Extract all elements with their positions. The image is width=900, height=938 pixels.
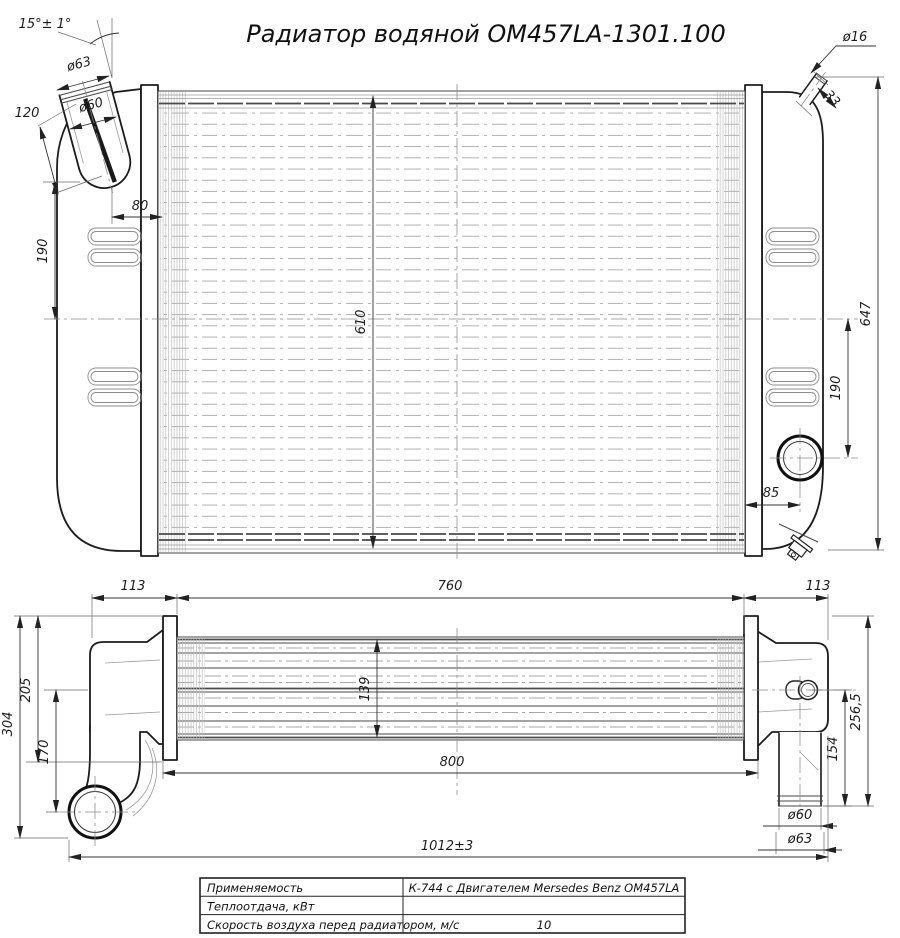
bottom-view: 113 760 113 304 205 170 139 bbox=[1, 579, 874, 862]
dim-right-height: 256,5 bbox=[826, 616, 874, 806]
dim-outlet-outer-dia: ø63 bbox=[758, 832, 842, 854]
right-side-plate bbox=[745, 85, 762, 556]
dim-label: 80 bbox=[132, 199, 149, 214]
spec-table: Применяемость К-744 с Двигателем Mersede… bbox=[200, 878, 685, 933]
radiator-core-bottom bbox=[177, 637, 744, 740]
spec-row-label: Теплоотдача, кВт bbox=[207, 900, 315, 914]
dim-label: 190 bbox=[36, 239, 51, 264]
dim-label: 256,5 bbox=[849, 693, 864, 730]
dim-label: 139 bbox=[358, 677, 373, 702]
dim-label: 33 bbox=[820, 87, 842, 109]
dim-steam-pipe-dia: ø16 bbox=[811, 30, 876, 73]
dim-label: 647 bbox=[859, 301, 874, 327]
left-side-plate bbox=[141, 85, 158, 556]
dim-core-width: 760 bbox=[177, 579, 744, 634]
technical-drawing: Радиатор водяной ОМ457LA-1301.100 bbox=[0, 0, 900, 938]
dim-label: 205 bbox=[19, 678, 34, 703]
spec-row-value: К-744 с Двигателем Mersedes Benz ОМ457LA bbox=[409, 881, 680, 895]
dim-label: 800 bbox=[440, 755, 465, 770]
dim-label: 85 bbox=[763, 486, 780, 501]
dim-label: 15°± 1° bbox=[19, 17, 72, 32]
dim-label: ø16 bbox=[842, 30, 868, 45]
spec-row-value: 10 bbox=[537, 918, 552, 932]
dim-label: 610 bbox=[354, 310, 369, 335]
spec-row-label: Скорость воздуха перед радиатором, м/с bbox=[207, 918, 460, 932]
dim-outlet-inner-dia: ø60 bbox=[763, 808, 837, 830]
left-elbow-pipe bbox=[58, 726, 157, 848]
front-view: 15°± 1° ø63 ø60 120 80 190 610 bbox=[15, 17, 884, 564]
right-tank bbox=[762, 92, 823, 549]
dim-label: ø63 bbox=[64, 54, 93, 75]
dim-tank-height: 647 bbox=[816, 77, 884, 550]
bottom-right-flange bbox=[744, 616, 758, 760]
dim-label: 304 bbox=[1, 712, 16, 737]
dim-frame-width: 800 bbox=[163, 755, 758, 779]
dim-label: 120 bbox=[15, 106, 40, 121]
radiator-core-front bbox=[158, 91, 745, 553]
drawing-sheet: Радиатор водяной ОМ457LA-1301.100 bbox=[0, 0, 900, 938]
dim-label: 113 bbox=[121, 579, 146, 594]
dim-label: ø63 bbox=[787, 832, 813, 847]
dim-label: 170 bbox=[37, 740, 52, 765]
dim-label: 1012±3 bbox=[421, 839, 473, 854]
dim-label: 190 bbox=[829, 376, 844, 401]
dim-label: 113 bbox=[806, 579, 831, 594]
dim-label: ø60 bbox=[787, 808, 813, 823]
bottom-left-flange bbox=[163, 616, 177, 760]
dim-lower-span: 190 bbox=[829, 319, 848, 457]
drawing-title: Радиатор водяной ОМ457LA-1301.100 bbox=[246, 20, 725, 48]
spec-row-label: Применяемость bbox=[207, 881, 303, 895]
dim-label: 760 bbox=[438, 579, 463, 594]
